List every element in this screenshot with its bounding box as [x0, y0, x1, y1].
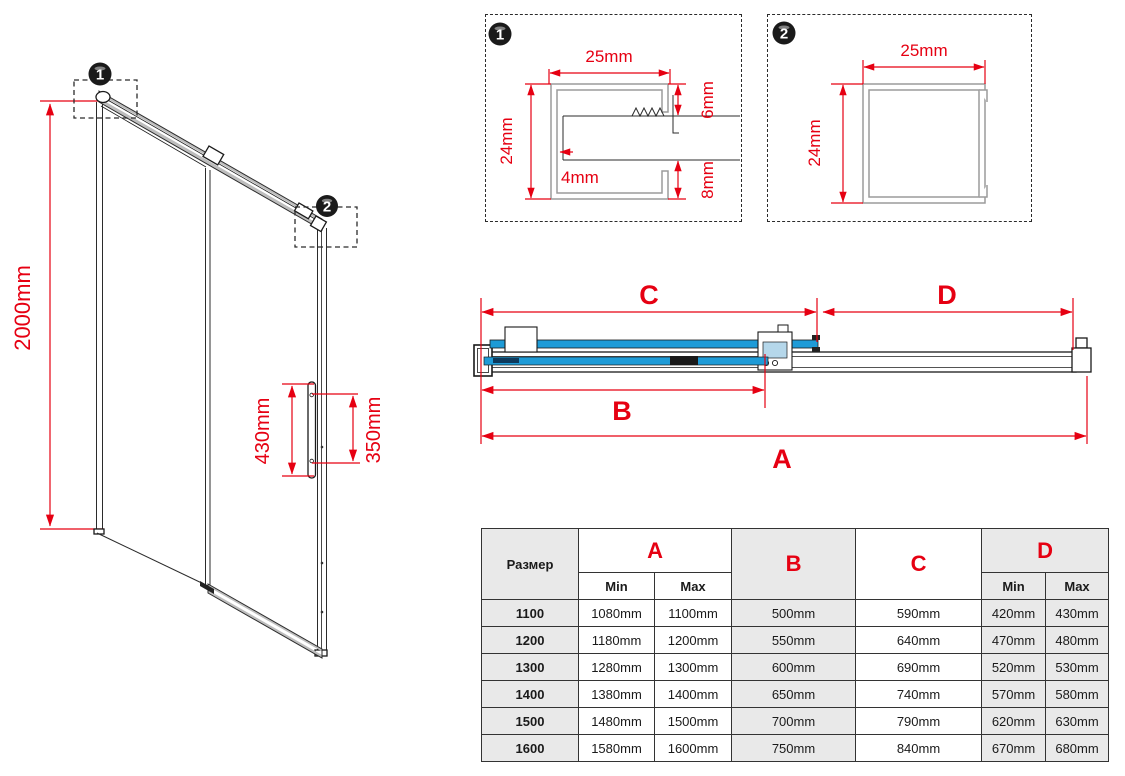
detail-1-panel: 1 25mm: [485, 14, 742, 222]
cell-d_max: 530mm: [1046, 654, 1109, 681]
stile-hole: [321, 446, 324, 449]
table-row: 15001480mm1500mm700mm790mm620mm630mm: [482, 708, 1109, 735]
size-column-header: Размер: [482, 529, 579, 600]
stile-hole: [321, 611, 324, 614]
door-bottom-rail: [200, 581, 322, 658]
door-panels: [94, 102, 327, 656]
rail-left-end-cap: [96, 92, 110, 103]
detail-1-drawing: 1 25mm: [486, 15, 740, 220]
glass-panel-edge: [563, 116, 740, 160]
cell-a_min: 1580mm: [579, 735, 655, 762]
column-c-header: C: [856, 529, 982, 600]
cell-b: 650mm: [732, 681, 856, 708]
column-d-header: D: [982, 529, 1109, 573]
cell-b: 550mm: [732, 627, 856, 654]
cell-size: 1400: [482, 681, 579, 708]
table-row: 12001180mm1200mm550mm640mm470mm480mm: [482, 627, 1109, 654]
cell-c: 840mm: [856, 735, 982, 762]
right-wall-profile: [1072, 348, 1091, 372]
gasket-seal: [632, 95, 679, 133]
cell-size: 1300: [482, 654, 579, 681]
handle-holes-label: 350mm: [363, 397, 385, 464]
cell-d_min: 470mm: [982, 627, 1046, 654]
cell-c: 740mm: [856, 681, 982, 708]
cell-d_max: 480mm: [1046, 627, 1109, 654]
callout-1-badge: 1: [89, 63, 112, 86]
cell-d_min: 620mm: [982, 708, 1046, 735]
door-top-rail: [96, 91, 322, 230]
stile-hole: [321, 562, 324, 565]
rail-end-bracket: [295, 203, 313, 219]
cell-d_max: 630mm: [1046, 708, 1109, 735]
detail-1-top-flange-dimension: 6mm: [668, 81, 717, 119]
table-row: 16001580mm1600mm750mm840mm670mm680mm: [482, 735, 1109, 762]
cell-a_min: 1480mm: [579, 708, 655, 735]
detail-1-bottom-flange-label: 8mm: [698, 161, 717, 199]
detail-1-top-flange-label: 6mm: [698, 81, 717, 119]
cell-d_min: 570mm: [982, 681, 1046, 708]
left-stile-bottom-cap: [94, 529, 104, 534]
cell-d_max: 580mm: [1046, 681, 1109, 708]
cell-c: 790mm: [856, 708, 982, 735]
cell-a_max: 1200mm: [655, 627, 732, 654]
cell-d_min: 670mm: [982, 735, 1046, 762]
glass-clamp-bracket: [505, 327, 537, 352]
table-row: 11001080mm1100mm500mm590mm420mm430mm: [482, 600, 1109, 627]
cell-size: 1600: [482, 735, 579, 762]
right-stile-top-cap: [311, 216, 327, 232]
cell-b: 750mm: [732, 735, 856, 762]
cell-a_max: 1600mm: [655, 735, 732, 762]
cell-a_max: 1400mm: [655, 681, 732, 708]
cell-d_max: 680mm: [1046, 735, 1109, 762]
detail-1-width-label: 25mm: [585, 47, 632, 66]
spec-sheet: 2000mm: [0, 0, 1125, 776]
cell-a_min: 1180mm: [579, 627, 655, 654]
cell-size: 1200: [482, 627, 579, 654]
column-a-header: A: [579, 529, 732, 573]
detail-2-number: 2: [780, 26, 788, 43]
table-row: 13001280mm1300mm600mm690mm520mm530mm: [482, 654, 1109, 681]
dim-b-label: B: [612, 396, 632, 426]
detail-2-height-label: 24mm: [805, 119, 824, 166]
cell-b: 600mm: [732, 654, 856, 681]
handle-length-label: 430mm: [252, 398, 274, 465]
cell-c: 590mm: [856, 600, 982, 627]
size-table: Размер A B C D Min Max Min Max 11001080m…: [481, 528, 1109, 762]
cell-c: 640mm: [856, 627, 982, 654]
dim-a-label: A: [772, 444, 792, 474]
dim-d-label: D: [937, 280, 957, 310]
right-end-tab: [1076, 338, 1087, 348]
cell-d_min: 520mm: [982, 654, 1046, 681]
cell-d_max: 430mm: [1046, 600, 1109, 627]
d-min-header: Min: [982, 573, 1046, 600]
cell-size: 1100: [482, 600, 579, 627]
cell-b: 700mm: [732, 708, 856, 735]
detail-1-gap-dimension: 4mm: [560, 152, 599, 187]
glass-bottom-edge: [97, 533, 208, 586]
detail-1-number: 1: [496, 27, 504, 44]
detail-2-width-dimension: 25mm: [863, 41, 985, 84]
cell-a_max: 1100mm: [655, 600, 732, 627]
door-height-dimension: 2000mm: [10, 101, 104, 529]
detail-2-panel: 2 25mm 24mm: [767, 14, 1032, 222]
detail-2-badge: 2: [773, 22, 796, 45]
detail-1-bottom-flange-dimension: 8mm: [668, 161, 717, 199]
detail-2-drawing: 2 25mm 24mm: [768, 15, 1030, 220]
detail-1-width-dimension: 25mm: [549, 47, 670, 84]
cell-d_min: 420mm: [982, 600, 1046, 627]
cell-a_min: 1380mm: [579, 681, 655, 708]
section-dimensions: C D B A: [481, 280, 1087, 474]
size-table-body: 11001080mm1100mm500mm590mm420mm430mm1200…: [482, 600, 1109, 762]
handle-length-dimension: 430mm: [252, 384, 314, 476]
dim-c-label: C: [639, 280, 659, 310]
callout-1-number: 1: [96, 67, 104, 84]
callout-2-badge: 2: [316, 195, 338, 217]
d-max-header: Max: [1046, 573, 1109, 600]
cell-a_max: 1500mm: [655, 708, 732, 735]
square-profile-section: [863, 84, 987, 203]
detail-1-gap-label: 4mm: [561, 168, 599, 187]
a-min-header: Min: [579, 573, 655, 600]
a-max-header: Max: [655, 573, 732, 600]
cell-size: 1500: [482, 708, 579, 735]
table-row: 14001380mm1400mm650mm740mm570mm580mm: [482, 681, 1109, 708]
detail-1-height-label: 24mm: [497, 117, 516, 164]
cell-a_min: 1080mm: [579, 600, 655, 627]
callout-2-number: 2: [323, 199, 331, 216]
detail-1-badge: 1: [489, 23, 512, 46]
cell-c: 690mm: [856, 654, 982, 681]
cell-b: 500mm: [732, 600, 856, 627]
detail-2-height-dimension: 24mm: [805, 84, 863, 203]
detail-1-height-dimension: 24mm: [497, 84, 551, 199]
cell-a_max: 1300mm: [655, 654, 732, 681]
cell-a_min: 1280mm: [579, 654, 655, 681]
plan-section-view: C D B A: [460, 268, 1125, 480]
handle-holes-dimension: 350mm: [312, 394, 385, 463]
column-b-header: B: [732, 529, 856, 600]
door-isometric-view: 2000mm: [0, 0, 470, 776]
door-height-label: 2000mm: [10, 265, 35, 351]
detail-2-width-label: 25mm: [900, 41, 947, 60]
fixed-glass-panel: [484, 356, 768, 365]
